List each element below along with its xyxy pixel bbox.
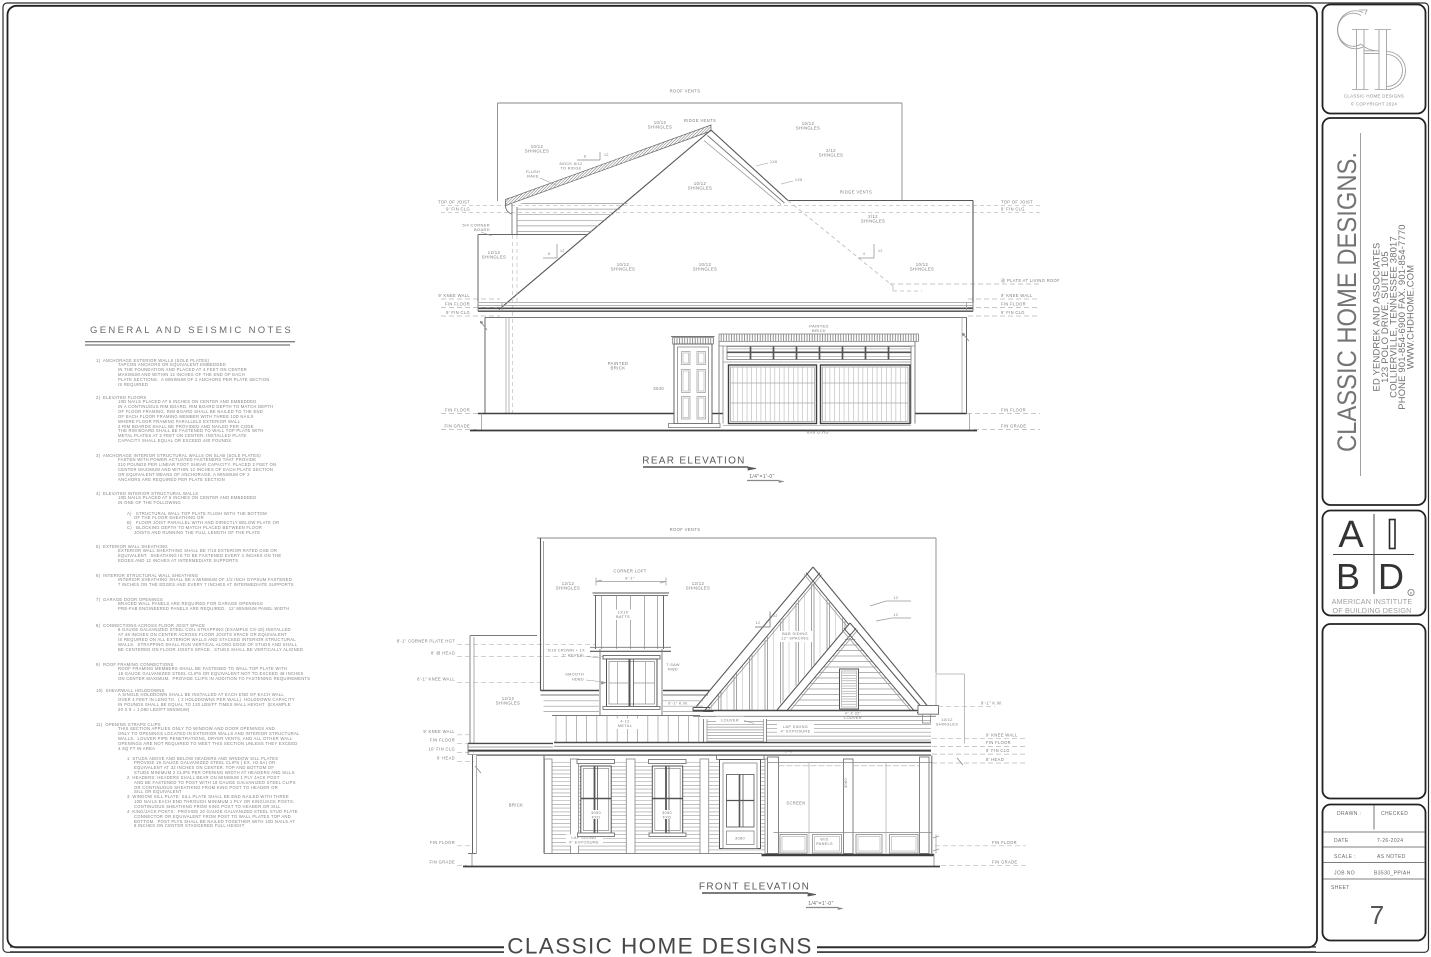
- svg-text:RWD: RWD: [668, 668, 678, 672]
- svg-text:CORNER LOFT: CORNER LOFT: [613, 569, 646, 574]
- svg-text:FIN FLOOR: FIN FLOOR: [1001, 408, 1026, 413]
- svg-text:1/4"=1'-0": 1/4"=1'-0": [808, 901, 834, 907]
- svg-text:12" SPACING: 12" SPACING: [781, 636, 809, 641]
- svg-text:4" X 32": 4" X 32": [845, 712, 862, 716]
- svg-text:8'-1" CORNER PLATE HGT: 8'-1" CORNER PLATE HGT: [397, 639, 455, 644]
- svg-text:FIN FLOOR: FIN FLOOR: [430, 738, 455, 743]
- svg-text:12: 12: [560, 249, 565, 253]
- svg-text:12: 12: [878, 249, 883, 253]
- svg-text:RAKE: RAKE: [527, 175, 539, 179]
- svg-text:1X8: 1X8: [795, 178, 802, 182]
- svg-text:SHINGLES: SHINGLES: [688, 186, 713, 191]
- svg-text:W/D: W/D: [820, 838, 828, 842]
- svg-text:9' KNEE WALL: 9' KNEE WALL: [1001, 293, 1033, 298]
- svg-text:FIN FLOOR: FIN FLOOR: [992, 840, 1017, 845]
- svg-text:SHINGLES: SHINGLES: [693, 267, 718, 272]
- svg-text:ROOF VENTS: ROOF VENTS: [670, 89, 701, 94]
- svg-text:TOP OF JOIST: TOP OF JOIST: [1001, 199, 1033, 204]
- svg-text:SHINGLES: SHINGLES: [611, 267, 636, 272]
- svg-text:FIN GRADE: FIN GRADE: [445, 424, 470, 429]
- svg-text:REAR ELEVATION: REAR ELEVATION: [642, 456, 745, 467]
- svg-text:SHINGLES: SHINGLES: [482, 255, 507, 260]
- svg-text:B3530_PPIAH: B3530_PPIAH: [1374, 871, 1411, 877]
- svg-text:FRONT ELEVATION: FRONT ELEVATION: [699, 882, 810, 893]
- svg-text:3060: 3060: [843, 777, 848, 788]
- svg-text:METAL: METAL: [618, 723, 633, 728]
- svg-text:BATTS: BATTS: [616, 614, 630, 619]
- svg-text:9' KNEE WALL: 9' KNEE WALL: [423, 729, 455, 734]
- svg-text:SHEET: SHEET: [1331, 885, 1350, 891]
- svg-text:8: 8: [584, 155, 586, 159]
- svg-text:SMOOTH: SMOOTH: [565, 673, 584, 677]
- svg-text:8'-1" KNEE WALL: 8'-1" KNEE WALL: [417, 677, 455, 682]
- svg-text:BRICK: BRICK: [611, 366, 626, 371]
- svg-text:FIN FLOOR: FIN FLOOR: [445, 408, 470, 413]
- svg-text:9' FIN CLG: 9' FIN CLG: [1001, 310, 1025, 315]
- svg-text:D: D: [1378, 556, 1404, 597]
- svg-text:© COPYRIGHT 2024: © COPYRIGHT 2024: [1351, 102, 1398, 107]
- svg-text:CLASSIC HOME DESIGNS.: CLASSIC HOME DESIGNS.: [1332, 152, 1362, 452]
- svg-text:12: 12: [773, 614, 778, 618]
- svg-text:FIN GRADE: FIN GRADE: [992, 860, 1017, 865]
- svg-text:A: A: [1338, 514, 1364, 556]
- svg-text:SHINGLES: SHINGLES: [525, 149, 550, 154]
- svg-text:SHINGLES: SHINGLES: [861, 219, 886, 224]
- svg-text:9' KNEE WALL: 9' KNEE WALL: [986, 733, 1018, 738]
- svg-text:1/4"=1'-0": 1/4"=1'-0": [749, 474, 775, 480]
- svg-text:SHINGLES: SHINGLES: [648, 125, 673, 130]
- svg-text:9' FIN CLG: 9' FIN CLG: [446, 310, 470, 315]
- svg-text:SCALE :: SCALE :: [1334, 854, 1356, 860]
- svg-text:9' FIN CLG: 9' FIN CLG: [1001, 206, 1025, 211]
- svg-text:FXD: FXD: [592, 814, 601, 819]
- svg-text:BOARD: BOARD: [474, 227, 490, 232]
- svg-text:FLUSH: FLUSH: [526, 170, 540, 174]
- svg-text:R: R: [1410, 592, 1413, 596]
- svg-text:FIN GRADE: FIN GRADE: [430, 860, 455, 865]
- svg-text:4" EXPOSURE: 4" EXPOSURE: [569, 839, 599, 844]
- svg-text:BRICK: BRICK: [812, 328, 826, 333]
- svg-text:CLASSIC HOME DESIGNS: CLASSIC HOME DESIGNS: [507, 934, 813, 957]
- svg-text:OF BUILDING DESIGN: OF BUILDING DESIGN: [1332, 606, 1411, 615]
- svg-text:SHINGLES: SHINGLES: [796, 126, 821, 131]
- svg-text:PANELS: PANELS: [816, 842, 833, 846]
- svg-text:BRICK: BRICK: [509, 803, 524, 808]
- svg-text:12: 12: [604, 153, 609, 157]
- svg-text:12: 12: [756, 621, 761, 625]
- svg-text:HDBD: HDBD: [572, 677, 584, 681]
- svg-text:9' FIN CLG: 9' FIN CLG: [446, 206, 470, 211]
- svg-text:B: B: [1336, 556, 1360, 597]
- svg-text:CHECKED: CHECKED: [1381, 811, 1408, 817]
- svg-text:8X8 O.HD: 8X8 O.HD: [807, 430, 829, 435]
- svg-text:7: 7: [1370, 900, 1384, 930]
- svg-text:TOP OF JOIST: TOP OF JOIST: [438, 199, 470, 204]
- svg-text:WWW.CHDHOME.COM: WWW.CHDHOME.COM: [1405, 265, 1416, 370]
- svg-text:2" REVEAL: 2" REVEAL: [562, 653, 585, 657]
- svg-text:LOUVER: LOUVER: [721, 717, 739, 722]
- svg-text:8: 8: [548, 252, 550, 256]
- svg-text:3040: 3040: [653, 386, 664, 391]
- svg-text:10' FIN CLG: 10' FIN CLG: [429, 747, 455, 752]
- svg-text:ROOF VENTS: ROOF VENTS: [670, 527, 701, 532]
- svg-text:8' HEAD: 8' HEAD: [986, 757, 1004, 762]
- svg-text:DATE: DATE: [1334, 838, 1349, 844]
- svg-text:FIN FLOOR: FIN FLOOR: [445, 302, 470, 307]
- svg-text:FIN FLOOR: FIN FLOOR: [430, 840, 455, 845]
- svg-text:4: 4: [863, 252, 865, 256]
- svg-text:MOCK 8/12: MOCK 8/12: [560, 162, 583, 166]
- svg-text:3080: 3080: [735, 836, 746, 841]
- svg-text:SHINGLES: SHINGLES: [910, 267, 935, 272]
- svg-text:SHINGLES: SHINGLES: [819, 153, 844, 158]
- svg-text:RIDGE VENTS: RIDGE VENTS: [684, 118, 716, 123]
- svg-text:JOB NO: JOB NO: [1334, 871, 1355, 877]
- svg-text:9' KNEE WALL: 9' KNEE WALL: [438, 293, 470, 298]
- svg-text:RIDGE VENTS: RIDGE VENTS: [840, 190, 872, 195]
- svg-text:9'-1" K.W.: 9'-1" K.W.: [981, 700, 1002, 705]
- svg-text:FIN FLOOR: FIN FLOOR: [986, 740, 1011, 745]
- svg-text:8' HEAD: 8' HEAD: [437, 756, 455, 761]
- svg-text:9'-1" K.W.: 9'-1" K.W.: [668, 701, 689, 706]
- svg-text:12: 12: [894, 596, 899, 600]
- svg-text:DRAWN :: DRAWN :: [1337, 811, 1361, 817]
- svg-text:FXD: FXD: [663, 814, 672, 819]
- svg-text:1X6: 1X6: [770, 160, 777, 164]
- svg-text:SHINGLES: SHINGLES: [686, 586, 711, 591]
- svg-text:SCREEN: SCREEN: [786, 801, 805, 806]
- svg-text:4" EXPOSURE: 4" EXPOSURE: [780, 728, 810, 733]
- svg-text:@ PLATE AT LIVING ROOF: @ PLATE AT LIVING ROOF: [1001, 278, 1060, 283]
- svg-text:SHINGLES: SHINGLES: [496, 701, 521, 706]
- svg-text:SHINGLES: SHINGLES: [936, 722, 959, 727]
- svg-text:TO RIDGE: TO RIDGE: [560, 167, 581, 171]
- svg-text:12: 12: [894, 613, 899, 617]
- svg-text:8'-1": 8'-1": [625, 576, 635, 581]
- svg-text:CLASSIC HOME DESIGNS: CLASSIC HOME DESIGNS: [1344, 94, 1404, 99]
- svg-text:7-26-2024: 7-26-2024: [1377, 838, 1403, 844]
- svg-text:FIN FLOOR: FIN FLOOR: [1001, 302, 1026, 307]
- svg-text:8' @ HEAD: 8' @ HEAD: [431, 651, 455, 656]
- svg-text:FIN GRADE: FIN GRADE: [1001, 424, 1026, 429]
- svg-text:5/16 CROWN + 1X: 5/16 CROWN + 1X: [548, 649, 586, 653]
- svg-text:T-SAW: T-SAW: [666, 663, 680, 667]
- svg-text:AS NOTED: AS NOTED: [1377, 854, 1406, 860]
- svg-text:AMERICAN INSTITUTE: AMERICAN INSTITUTE: [1332, 597, 1413, 606]
- svg-text:SHINGLES: SHINGLES: [556, 586, 581, 591]
- svg-text:9' FIN CLG: 9' FIN CLG: [986, 748, 1010, 753]
